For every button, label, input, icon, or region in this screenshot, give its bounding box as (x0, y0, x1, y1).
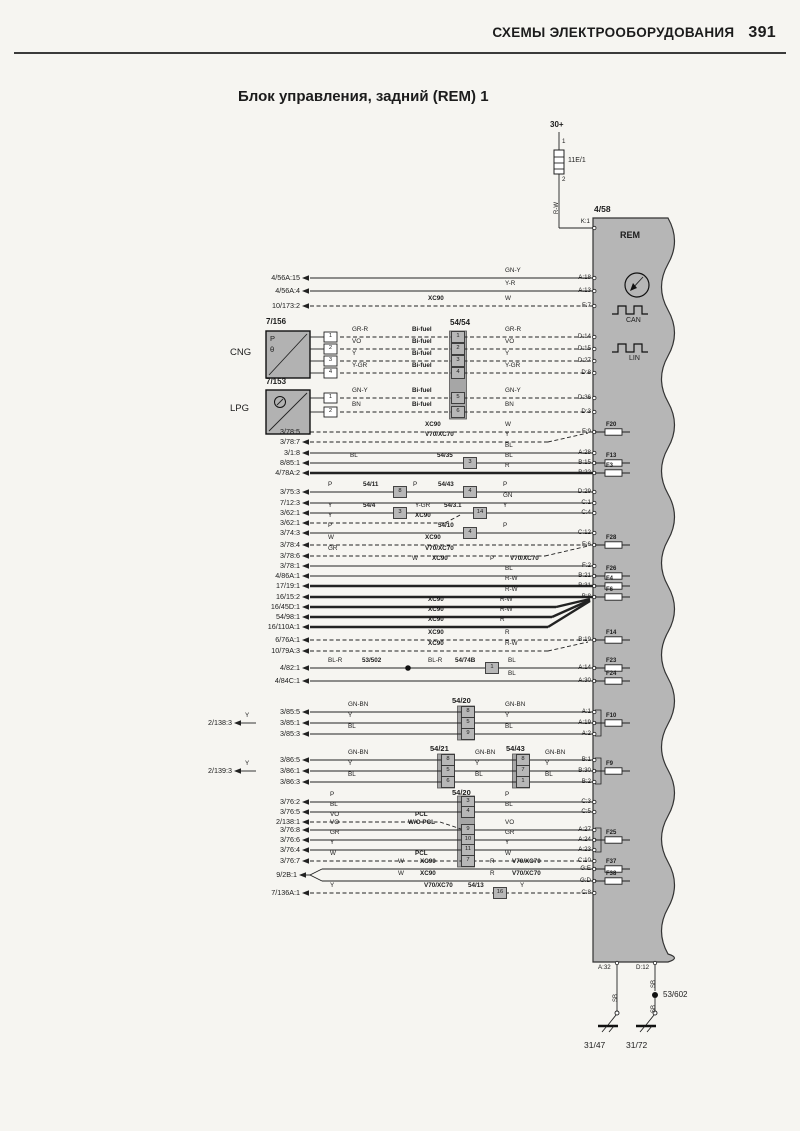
port-label: 4/56A:15 (271, 274, 300, 281)
fuse-label: F24 (606, 671, 616, 677)
connector-id-label: V70/XC70 (510, 556, 539, 562)
connector-id-label: A:32 (598, 965, 611, 971)
wire-color-label: R (505, 630, 510, 636)
pin-label: B:15 (578, 460, 591, 466)
component-id: 11E/1 (568, 157, 586, 164)
pin-terminal (593, 396, 596, 399)
connector-id-label: 54/43 (438, 482, 454, 488)
component-id: 7/153 (266, 378, 286, 386)
wire-color-label: W (398, 859, 404, 865)
wire-color-label: BL (348, 772, 356, 778)
fuse-icon (605, 768, 622, 774)
wire-color-label: R (490, 871, 495, 877)
port-label: 4/82:1 (280, 664, 300, 671)
port-label: 4/56A:4 (275, 287, 300, 294)
pin-terminal (593, 848, 596, 851)
connector-id-label: Bi-fuel (412, 388, 432, 394)
port-label: 6/76A:1 (275, 636, 300, 643)
bus-label: LIN (629, 355, 640, 362)
wire-color-label: R (490, 859, 495, 865)
wire-color-label: BN (352, 402, 361, 408)
connector-id-label: XC90 (428, 630, 444, 636)
arrow-left-icon (302, 439, 309, 445)
fuse-icon (605, 429, 622, 435)
wire-color-label: BL (475, 772, 483, 778)
wire-color-label: Y-GR (352, 363, 367, 369)
connector-pin-number: 5 (442, 768, 455, 774)
connector-id-label: Bi-fuel (412, 402, 432, 408)
connector-id-label: 4/58 (594, 205, 611, 214)
pin-label: F:6 (582, 542, 591, 548)
connector-id-label: Bi-fuel (412, 327, 432, 333)
arrow-left-icon (302, 731, 309, 737)
pin-label: C:5 (581, 809, 591, 815)
port-label: 3/85:1 (280, 719, 300, 726)
wire-color-label: Y (352, 351, 356, 357)
pin-terminal (593, 304, 596, 307)
arrow-left-icon (302, 637, 309, 643)
pin-terminal (593, 289, 596, 292)
ground-wire (646, 1015, 654, 1025)
connector-id-label: 54/35 (437, 453, 453, 459)
port-label: 3/76:7 (280, 857, 300, 864)
pin-label: F:9 (582, 429, 591, 435)
connector-id-label: Bi-fuel (412, 363, 432, 369)
connector-id-label: W/O PCL (408, 820, 435, 826)
wire-color-label: Y (475, 761, 479, 767)
pin-label: D:15 (578, 346, 591, 352)
connector-id-label: V70/XC70 (512, 859, 541, 865)
pin-label: G:E (580, 866, 591, 872)
arrow-left-icon (302, 768, 309, 774)
pin-label: A:13 (578, 288, 591, 294)
pin-terminal (593, 810, 596, 813)
arrow-left-icon (302, 573, 309, 579)
port-label: 3/75:3 (280, 488, 300, 495)
connector-pin-number: 3 (452, 358, 465, 364)
pin-label: A:19 (578, 720, 591, 726)
connector-id-label: V70/XC70 (424, 883, 453, 889)
pin-label: 2 (562, 177, 565, 183)
pin-label: B:1 (582, 757, 591, 763)
port-label: 4/78A:2 (275, 469, 300, 476)
pin-terminal (593, 371, 596, 374)
pin-terminal (593, 226, 596, 229)
arrow-left-icon (302, 275, 309, 281)
arrow-left-icon (302, 847, 309, 853)
wire-color-label: GR-R (505, 327, 521, 333)
pin-label: A:28 (578, 450, 591, 456)
wire-color-label: P (328, 523, 332, 529)
wire-color-label: W (398, 871, 404, 877)
arrow-left-icon (302, 530, 309, 536)
pin-label: B:31 (578, 583, 591, 589)
arrow-left-icon (302, 720, 309, 726)
arrow-left-icon (302, 837, 309, 843)
component-pin-number: 1 (324, 395, 337, 401)
pin-terminal (593, 451, 596, 454)
wire-color-label: BL (330, 802, 338, 808)
wire-color-label: Y (505, 432, 509, 438)
fuse-icon (605, 678, 622, 684)
wire-color-label: R-W (505, 641, 518, 647)
connector-pin-number: 4 (464, 530, 477, 536)
ground-wire (608, 1015, 616, 1025)
wire-color-label: BL (348, 724, 356, 730)
pin-label: A:30 (578, 678, 591, 684)
pin-label: C:12 (578, 530, 591, 536)
wire-color-label: BN (505, 402, 514, 408)
arrow-left-icon (302, 553, 309, 559)
connector-id-label: XC90 (425, 422, 441, 428)
fuse-label: F38 (606, 871, 616, 877)
component-symbol-label: θ (270, 346, 274, 354)
wire-color-label: BL (545, 772, 553, 778)
arrow-left-icon (302, 678, 309, 684)
component-id: 7/156 (266, 318, 286, 326)
pin-terminal (593, 531, 596, 534)
arrow-left-icon (302, 510, 309, 516)
wire-color-label: VO (505, 820, 514, 826)
pin-label: D:8 (581, 370, 591, 376)
arrow-left-icon (302, 460, 309, 466)
connector-pin-number: 1 (452, 334, 465, 340)
connector-id-label: 54/20 (452, 697, 471, 705)
port-label: 3/76:6 (280, 836, 300, 843)
pin-terminal (593, 347, 596, 350)
arrow-left-icon (302, 757, 309, 763)
arrow-left-icon (302, 665, 309, 671)
port-label: 3/76:2 (280, 798, 300, 805)
wire-color-label: Y (545, 761, 549, 767)
pin-label: C:3 (581, 799, 591, 805)
connector-pin-number: 4 (462, 809, 475, 815)
connector-id-label: XC90 (420, 859, 436, 865)
connector-pin-number: 14 (474, 510, 487, 516)
wire-color-label: Y (503, 503, 507, 509)
bus-label: CAN (626, 317, 641, 324)
connector-pin-number: 2 (452, 346, 465, 352)
connector-pin-number: 1 (517, 779, 530, 785)
arrow-left-icon (302, 709, 309, 715)
wire-color-label: GN-BN (348, 702, 368, 708)
wire-color-label: VO (505, 339, 514, 345)
connector-id-label: 53/602 (663, 991, 687, 999)
fuse-label: F28 (606, 535, 616, 541)
connector-id-label: XC90 (415, 513, 431, 519)
connector-id-label: PCL (415, 851, 428, 857)
wire-color-label: Y (348, 713, 352, 719)
pin-label: B:2 (582, 779, 591, 785)
connector-id-label: XC90 (428, 617, 444, 623)
port-label: 3/78:4 (280, 541, 300, 548)
wire-color-label: Y-GR (415, 503, 430, 509)
connector-id-label: Bi-fuel (412, 339, 432, 345)
fuse-label: F14 (606, 630, 616, 636)
fuse-label: F9 (606, 761, 613, 767)
connector-pin-number: 8 (517, 757, 530, 763)
pin-terminal (593, 490, 596, 493)
pin-terminal (593, 891, 596, 894)
pin-terminal (593, 710, 596, 713)
wire-color-label: Y (520, 883, 524, 889)
connector-pin-number: 1 (486, 665, 499, 671)
wire-color-label: R-W (505, 576, 518, 582)
connector-pin-number: 4 (464, 489, 477, 495)
wire-color-label: W (412, 556, 418, 562)
fuse-label: F4 (606, 576, 613, 582)
port-label: 3/85:5 (280, 708, 300, 715)
port-label: 3/76:4 (280, 846, 300, 853)
wire-color-label: Y (328, 503, 332, 509)
arrow-left-icon (302, 604, 309, 610)
fuse-icon (605, 878, 622, 884)
fuse-label: F10 (606, 713, 616, 719)
connector-id-label: 54/13 (468, 883, 484, 889)
wire-color-label: P (328, 482, 332, 488)
pin-label: C:8 (581, 890, 591, 896)
wire-color-label: GR (328, 546, 337, 552)
wire-color-label: Y (330, 883, 334, 889)
pin-label: A:18 (578, 275, 591, 281)
port-label: 3/1:8 (284, 449, 300, 456)
pin-label: F:7 (582, 303, 591, 309)
port-label: 10/173:2 (272, 302, 300, 309)
component-symbol-label: P (270, 335, 275, 343)
wire-color-label: P (503, 482, 507, 488)
fuse-label: F20 (606, 422, 616, 428)
fuse-icon (605, 720, 622, 726)
wire-color-label: Y (245, 713, 249, 719)
port-label: 3/86:5 (280, 756, 300, 763)
wire-color-label: R-W (500, 597, 513, 603)
connector-pin-number: 8 (442, 757, 455, 763)
connector-id-label: PCL (415, 812, 428, 818)
port-label: 8/85:1 (280, 459, 300, 466)
pin-terminal (593, 359, 596, 362)
connector-id-label: XC90 (428, 296, 444, 302)
connector-pin-number: 11 (462, 847, 475, 853)
connector-id-label: V70/XC70 (425, 432, 454, 438)
port-label: 54/98:1 (276, 613, 300, 620)
wiring-diagram-canvas (0, 0, 800, 1131)
pin-terminal (593, 410, 596, 413)
fuse-icon (605, 542, 622, 548)
port-label: 3/86:1 (280, 767, 300, 774)
connector-pin-number: 3 (462, 799, 475, 805)
pin-label: B:30 (578, 768, 591, 774)
wire-color-label: GN-BN (505, 702, 525, 708)
arrow-left-icon (302, 614, 309, 620)
wire-color-label: SB (651, 980, 657, 988)
fuse-icon (605, 470, 622, 476)
port-label: 7/136A:1 (271, 889, 300, 896)
port-label: 16/15:2 (276, 593, 300, 600)
connector-pin-number: 6 (452, 409, 465, 415)
pin-terminal (593, 511, 596, 514)
connector-id-label: 54/20 (452, 789, 471, 797)
connector-pin-number: 4 (452, 370, 465, 376)
wire-color-label: SB (613, 994, 619, 1002)
component-pin-number: 2 (324, 346, 337, 352)
pin-terminal (593, 758, 596, 761)
port-label: 3/78:5 (280, 428, 300, 435)
port-label: 4/84C:1 (275, 677, 300, 684)
wire-color-label: R (505, 463, 510, 469)
arrow-left-icon (302, 520, 309, 526)
wire-merge (548, 642, 588, 651)
port-label: 2/138:3 (208, 719, 232, 726)
connector-id-label: V70/XC70 (425, 546, 454, 552)
component-pin-number: 1 (324, 334, 337, 340)
component-name: CNG (230, 348, 251, 358)
pin-terminal (593, 859, 596, 862)
pin-label: G:D (580, 878, 591, 884)
pin-label: B:8 (582, 594, 591, 600)
wire-color-label: GN-BN (475, 750, 495, 756)
wire-color-label: W (505, 296, 511, 302)
connector-id-label: XC90 (432, 556, 448, 562)
port-label: 3/85:3 (280, 730, 300, 737)
arrow-left-icon (302, 542, 309, 548)
power-label: 30+ (550, 121, 564, 129)
wire-color-label: P (413, 482, 417, 488)
wire-color-label: R (500, 617, 505, 623)
wire-color-label: P (330, 792, 334, 798)
fuse-label: F25 (606, 830, 616, 836)
connector-pin-number: 10 (462, 837, 475, 843)
port-label: 3/78:1 (280, 562, 300, 569)
wire-color-label: GR-R (352, 327, 368, 333)
wire-color-label: Y (505, 713, 509, 719)
pin-terminal (615, 961, 618, 964)
component-pin-number: 3 (324, 358, 337, 364)
component-pin-number: 2 (324, 409, 337, 415)
arrow-left-icon (302, 303, 309, 309)
wire-color-label: W (505, 422, 511, 428)
pin-label: D:14 (578, 334, 591, 340)
wire-color-label: Y-GR (505, 363, 520, 369)
wire-color-label: Y-R (505, 281, 515, 287)
pin-label: D:3 (581, 409, 591, 415)
connector-id-label: XC90 (428, 597, 444, 603)
pin-label: K:1 (581, 219, 590, 225)
wire-color-label: Y (505, 840, 509, 846)
port-label: 2/139:3 (208, 767, 232, 774)
port-label: 16/110A:1 (268, 623, 300, 630)
wire-color-label: BL (505, 453, 513, 459)
arrow-left-icon (302, 470, 309, 476)
connector-id-label: XC90 (420, 871, 436, 877)
connector-id-label: 54/10 (438, 523, 454, 529)
wire-color-label: GN (503, 493, 512, 499)
fuse-label: F37 (606, 859, 616, 865)
port-label: 17/19:1 (276, 582, 300, 589)
arrow-left-icon (302, 624, 309, 630)
port-label: 3/76:8 (280, 826, 300, 833)
pin-label: B:22 (578, 470, 591, 476)
arrow-left-icon (302, 827, 309, 833)
scanned-page: СХЕМЫ ЭЛЕКТРООБОРУДОВАНИЯ391 Блок управл… (0, 0, 800, 1131)
connector-pin-number: 5 (462, 720, 475, 726)
port-label: 3/74:3 (280, 529, 300, 536)
pin-terminal (593, 828, 596, 831)
wire-color-label: BL (505, 443, 513, 449)
connector-id-label: 54/4 (363, 503, 375, 509)
fuse-component-icon (554, 150, 564, 174)
pin-label: A:1 (582, 709, 591, 715)
pin-label: C:1 (581, 500, 591, 506)
wire-fork (310, 869, 322, 881)
pin-label: 1 (562, 139, 565, 145)
fuse-label: F13 (606, 453, 616, 459)
pin-label: A:27 (578, 827, 591, 833)
wire-color-label: R-W (554, 202, 560, 214)
wire-color-label: Y (330, 840, 334, 846)
connector-id-label: XC90 (425, 535, 441, 541)
port-label: 10/79A:3 (271, 647, 300, 654)
connector-id-label: 53/502 (362, 658, 381, 664)
pin-label: A:24 (578, 837, 591, 843)
wire-color-label: GN-BN (348, 750, 368, 756)
connector-id-label: XC90 (428, 607, 444, 613)
fuse-label: F6 (606, 587, 613, 593)
arrow-left-icon (302, 819, 309, 825)
arrow-left-icon (302, 583, 309, 589)
pin-terminal (593, 335, 596, 338)
pin-label: B:21 (578, 573, 591, 579)
wire-color-label: P (503, 523, 507, 529)
wire-color-label: GN-Y (505, 268, 521, 274)
port-label: 3/78:7 (280, 438, 300, 445)
pin-terminal (593, 276, 596, 279)
wire-color-label: BL (350, 453, 358, 459)
wire-color-label: GR (505, 830, 514, 836)
connector-pin-number: 6 (442, 779, 455, 785)
pin-label: A:2 (582, 731, 591, 737)
connector-id-label: XC90 (428, 641, 444, 647)
wire-color-label: W (328, 535, 334, 541)
arrow-left-icon (302, 890, 309, 896)
wire-color-label: VO (330, 812, 339, 818)
wire-color-label: Y (245, 761, 249, 767)
pin-label: C:4 (581, 510, 591, 516)
arrow-left-icon (302, 500, 309, 506)
wire-color-label: VO (330, 820, 339, 826)
pin-label: A:14 (578, 665, 591, 671)
pin-label: D:36 (578, 395, 591, 401)
arrow-left-icon (302, 809, 309, 815)
component-name: LPG (230, 404, 249, 414)
arrow-left-icon (234, 768, 241, 774)
connector-id-label: D:12 (636, 965, 649, 971)
arrow-left-icon (302, 648, 309, 654)
wire-color-label: BL (505, 802, 513, 808)
arrow-left-icon (302, 563, 309, 569)
wire-color-label: GN-Y (505, 388, 521, 394)
pin-terminal (593, 800, 596, 803)
connector-id-label: 54/43 (506, 745, 525, 753)
port-label: 4/86A:1 (275, 572, 300, 579)
pin-label: F:2 (582, 563, 591, 569)
arrow-left-icon (302, 779, 309, 785)
wire-color-label: BL (505, 724, 513, 730)
pin-terminal (593, 564, 596, 567)
wire-color-label: P (490, 556, 494, 562)
arrow-left-icon (234, 720, 241, 726)
connector-pin-number: 3 (464, 460, 477, 466)
port-label: 3/76:5 (280, 808, 300, 815)
